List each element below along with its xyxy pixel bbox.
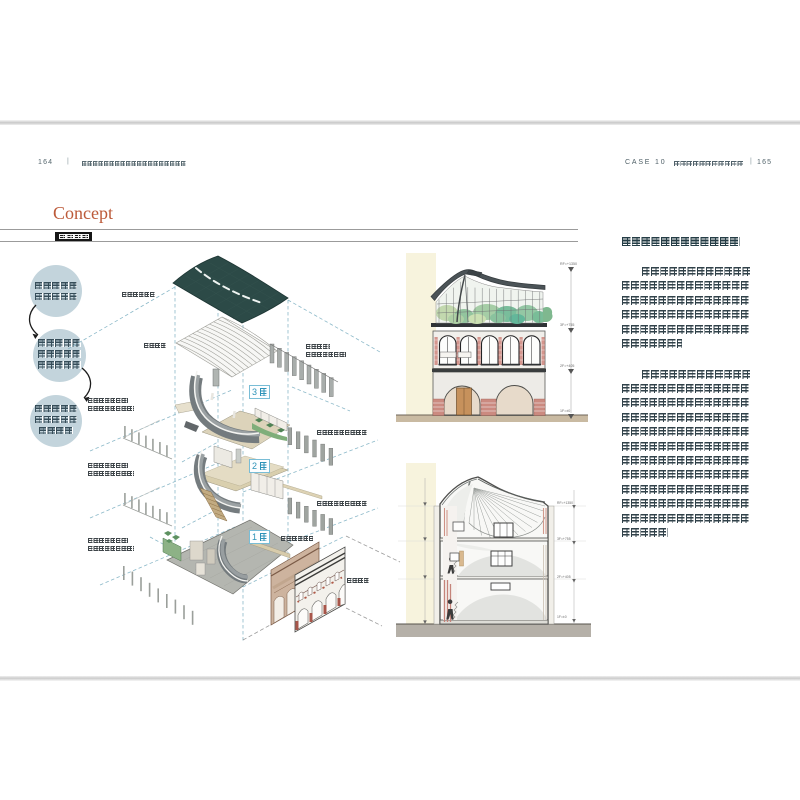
svg-text:3F=+755: 3F=+755	[560, 323, 574, 327]
svg-text:2F=+405: 2F=+405	[560, 364, 574, 368]
svg-text:1F=±0: 1F=±0	[560, 409, 570, 413]
svg-text:1F=±0: 1F=±0	[557, 615, 567, 619]
svg-text:RF=+1350: RF=+1350	[557, 501, 573, 505]
svg-text:RF=+1350: RF=+1350	[560, 262, 577, 266]
svg-text:3F=+755: 3F=+755	[557, 537, 571, 541]
svg-text:2F=+405: 2F=+405	[557, 575, 571, 579]
